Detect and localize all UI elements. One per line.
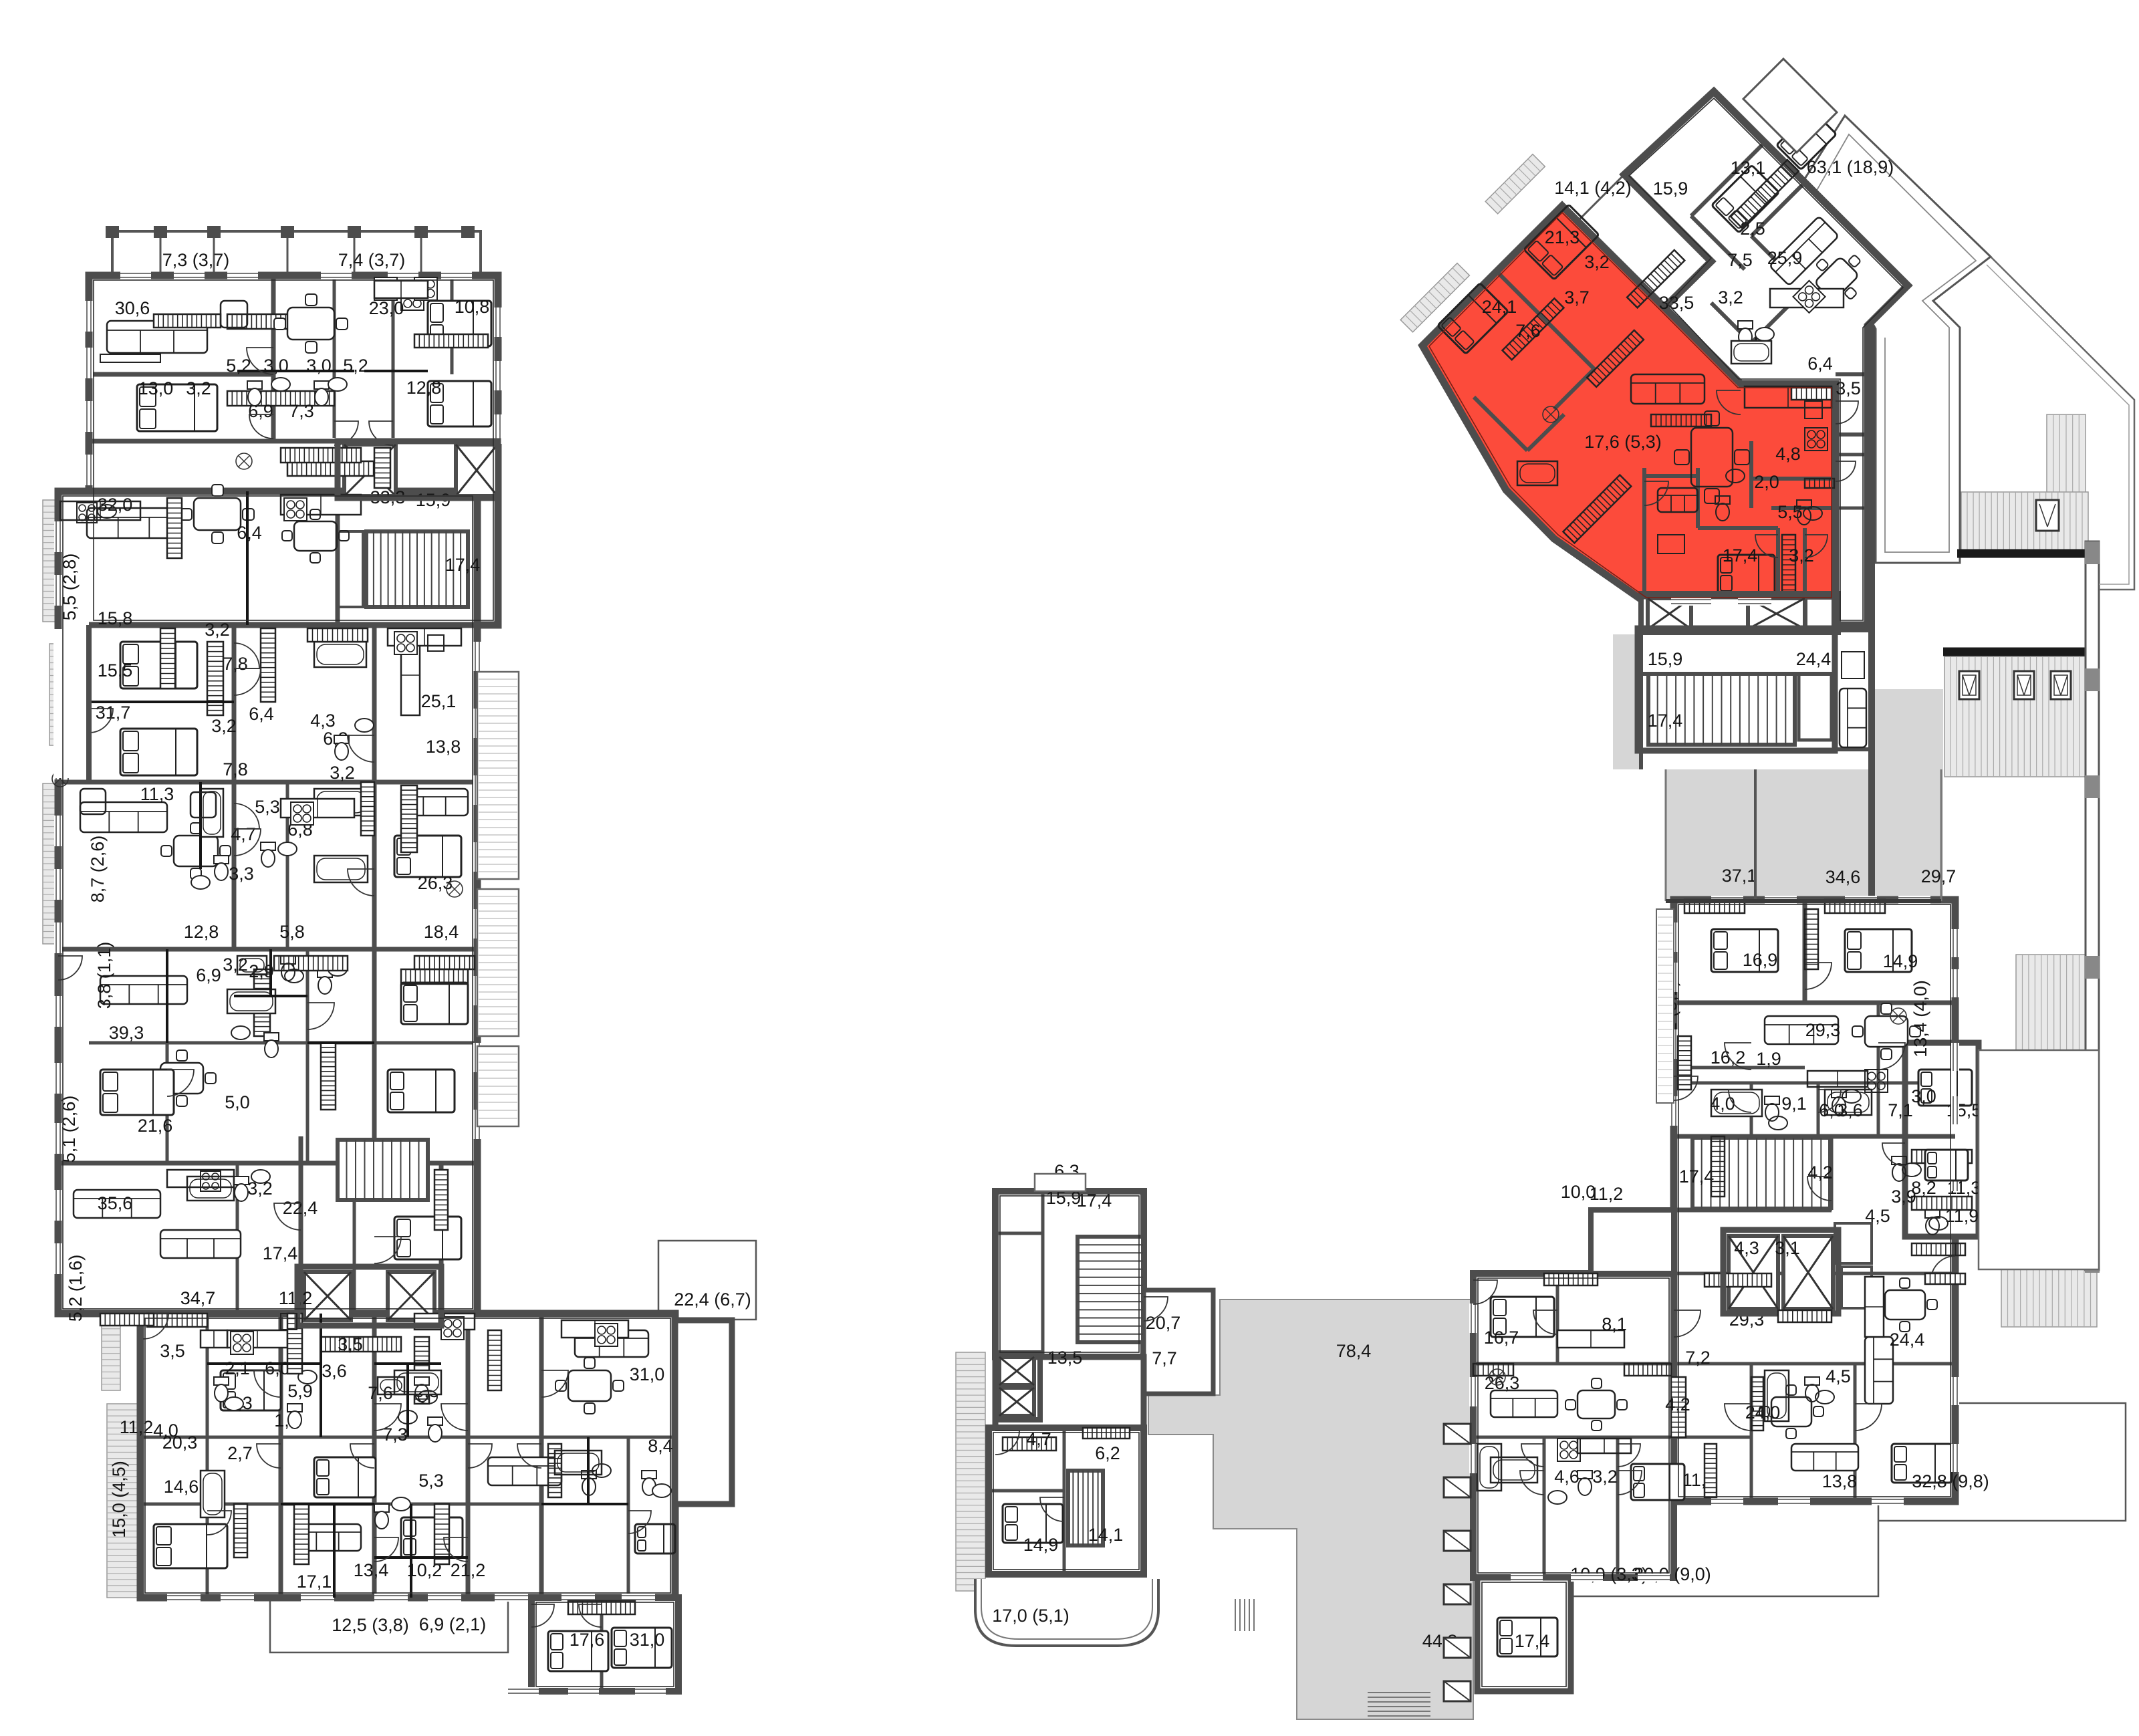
svg-text:4,3: 4,3 — [310, 711, 336, 731]
svg-text:13,4: 13,4 — [354, 1560, 389, 1580]
svg-text:3,7: 3,7 — [1564, 287, 1590, 307]
svg-text:7,8: 7,8 — [223, 759, 248, 779]
svg-text:7,6: 7,6 — [1515, 321, 1541, 341]
svg-text:4,0: 4,0 — [1710, 1094, 1735, 1114]
svg-text:22,4: 22,4 — [283, 1198, 318, 1218]
svg-text:29,7: 29,7 — [1921, 866, 1957, 886]
svg-text:13,5: 13,5 — [1047, 1348, 1083, 1368]
svg-text:20,7: 20,7 — [1146, 1313, 1181, 1333]
svg-text:7,4 (3,7): 7,4 (3,7) — [338, 250, 406, 270]
svg-text:34,7: 34,7 — [180, 1288, 216, 1308]
svg-text:17,4: 17,4 — [263, 1243, 298, 1263]
svg-text:17,1: 17,1 — [297, 1572, 332, 1592]
svg-text:4,5: 4,5 — [1865, 1206, 1890, 1226]
svg-text:3,6: 3,6 — [322, 1361, 347, 1381]
svg-text:78,4: 78,4 — [1336, 1341, 1372, 1361]
svg-text:17,4: 17,4 — [1723, 545, 1758, 566]
svg-text:7,3 (3,7): 7,3 (3,7) — [162, 250, 230, 270]
svg-text:17,4: 17,4 — [1648, 711, 1683, 731]
svg-text:3,5: 3,5 — [160, 1341, 185, 1361]
svg-text:1,9: 1,9 — [1756, 1049, 1781, 1069]
svg-text:21,2: 21,2 — [451, 1560, 486, 1580]
svg-text:5,8: 5,8 — [279, 922, 305, 942]
svg-text:5,3: 5,3 — [418, 1471, 444, 1491]
svg-text:3,8 (1,1): 3,8 (1,1) — [94, 942, 114, 1009]
svg-text:63,1 (18,9): 63,1 (18,9) — [1807, 157, 1894, 177]
svg-text:5,3: 5,3 — [255, 797, 280, 817]
svg-text:29,3: 29,3 — [1805, 1020, 1841, 1040]
svg-text:7,7: 7,7 — [1152, 1348, 1177, 1368]
svg-text:17,4: 17,4 — [1679, 1166, 1715, 1187]
svg-text:5,2 (1,6): 5,2 (1,6) — [66, 1255, 86, 1322]
svg-text:17,6: 17,6 — [570, 1630, 605, 1650]
svg-text:22,4 (6,7): 22,4 (6,7) — [674, 1289, 751, 1310]
svg-text:3,9: 3,9 — [1891, 1187, 1916, 1207]
svg-text:2,5: 2,5 — [1740, 219, 1765, 239]
svg-text:4,6: 4,6 — [1554, 1467, 1580, 1487]
svg-text:21,3: 21,3 — [1545, 227, 1580, 247]
svg-text:14,1 (4,2): 14,1 (4,2) — [1554, 178, 1632, 198]
svg-text:15,8: 15,8 — [98, 608, 133, 628]
svg-text:11,2: 11,2 — [1590, 1184, 1624, 1204]
svg-text:10,8: 10,8 — [455, 297, 490, 317]
svg-text:7,5: 7,5 — [1727, 250, 1753, 270]
svg-text:6,9: 6,9 — [196, 965, 221, 985]
svg-text:8,1: 8,1 — [1602, 1314, 1627, 1334]
svg-text:8,4: 8,4 — [648, 1436, 673, 1456]
svg-text:3,2: 3,2 — [205, 620, 230, 640]
svg-text:15,9: 15,9 — [1648, 649, 1683, 669]
svg-text:35,6: 35,6 — [98, 1193, 133, 1213]
svg-text:2,7: 2,7 — [227, 1443, 253, 1463]
svg-text:39,3: 39,3 — [109, 1023, 144, 1043]
svg-text:14,9: 14,9 — [1883, 951, 1918, 971]
svg-text:3,3: 3,3 — [229, 864, 254, 884]
svg-text:24,4: 24,4 — [1796, 649, 1832, 669]
svg-text:18,4: 18,4 — [424, 922, 459, 942]
svg-text:15,0 (4,5): 15,0 (4,5) — [109, 1461, 129, 1538]
svg-text:23,0: 23,0 — [369, 298, 404, 318]
svg-text:24,1: 24,1 — [1482, 297, 1517, 317]
svg-text:15,5: 15,5 — [98, 660, 133, 680]
svg-text:4,7: 4,7 — [231, 824, 256, 844]
svg-text:6,0: 6,0 — [265, 1358, 290, 1378]
svg-text:3,2: 3,2 — [330, 763, 355, 783]
svg-text:34,6: 34,6 — [1826, 867, 1861, 887]
svg-text:13,4 (4,0): 13,4 (4,0) — [1910, 980, 1930, 1058]
svg-text:15,9: 15,9 — [1653, 178, 1688, 199]
svg-text:8,7 (2,6): 8,7 (2,6) — [88, 836, 108, 903]
svg-text:4,2: 4,2 — [1807, 1162, 1833, 1183]
svg-text:12,5 (3,8): 12,5 (3,8) — [332, 1615, 409, 1635]
svg-text:12,8: 12,8 — [184, 922, 219, 942]
svg-text:7,1: 7,1 — [1888, 1100, 1913, 1120]
svg-text:14,6: 14,6 — [164, 1477, 199, 1497]
svg-text:3,2: 3,2 — [1789, 545, 1814, 566]
svg-text:13,8: 13,8 — [1822, 1471, 1858, 1491]
svg-text:6,9 (2,1): 6,9 (2,1) — [419, 1614, 487, 1634]
svg-text:5,2: 5,2 — [343, 356, 368, 376]
svg-text:3,2: 3,2 — [1584, 252, 1610, 272]
svg-text:31,0: 31,0 — [630, 1630, 665, 1650]
svg-text:16,7: 16,7 — [1484, 1328, 1519, 1348]
svg-text:6,4: 6,4 — [237, 523, 262, 543]
svg-text:5,0: 5,0 — [225, 1092, 250, 1112]
svg-text:4,5: 4,5 — [1826, 1366, 1851, 1386]
svg-text:30,6: 30,6 — [115, 298, 150, 318]
svg-text:11,2: 11,2 — [120, 1417, 154, 1437]
svg-text:14,1: 14,1 — [1088, 1525, 1124, 1545]
svg-text:13,0: 13,0 — [138, 378, 174, 398]
svg-text:17,0 (5,1): 17,0 (5,1) — [992, 1606, 1069, 1626]
svg-text:3,2: 3,2 — [186, 378, 211, 398]
svg-text:9,1: 9,1 — [1781, 1094, 1807, 1114]
svg-text:16,2: 16,2 — [1711, 1047, 1746, 1068]
svg-text:14,9: 14,9 — [1023, 1535, 1059, 1555]
svg-text:4,8: 4,8 — [1775, 444, 1801, 464]
svg-text:37,1: 37,1 — [1722, 866, 1757, 886]
svg-text:24,4: 24,4 — [1890, 1330, 1925, 1350]
svg-text:7,2: 7,2 — [1685, 1348, 1711, 1368]
svg-text:17,4: 17,4 — [1077, 1191, 1112, 1211]
svg-text:20,3: 20,3 — [162, 1433, 198, 1453]
svg-text:25,1: 25,1 — [421, 691, 457, 711]
svg-text:2,1: 2,1 — [225, 1358, 250, 1378]
svg-text:3,2: 3,2 — [1592, 1467, 1618, 1487]
svg-text:7,3: 7,3 — [289, 401, 314, 421]
svg-text:21,6: 21,6 — [138, 1116, 173, 1136]
svg-text:4,3: 4,3 — [1734, 1238, 1759, 1258]
svg-text:17,6 (5,3): 17,6 (5,3) — [1584, 432, 1662, 452]
svg-text:17,4: 17,4 — [1515, 1631, 1550, 1651]
svg-text:13,8: 13,8 — [426, 737, 461, 757]
svg-text:26,3: 26,3 — [418, 873, 453, 893]
svg-text:33,5: 33,5 — [1659, 293, 1694, 313]
svg-text:11,3: 11,3 — [140, 784, 174, 804]
svg-text:3,2: 3,2 — [211, 716, 237, 736]
svg-text:6,4: 6,4 — [1807, 354, 1833, 374]
svg-text:12,8: 12,8 — [406, 378, 442, 398]
svg-text:3,0: 3,0 — [306, 356, 332, 376]
svg-text:13,1: 13,1 — [1731, 158, 1766, 178]
svg-text:6,4: 6,4 — [249, 704, 274, 724]
svg-text:3,5: 3,5 — [1836, 378, 1861, 398]
svg-text:3,0: 3,0 — [263, 356, 289, 376]
svg-text:31,0: 31,0 — [630, 1364, 665, 1384]
svg-text:32,0: 32,0 — [98, 495, 133, 515]
svg-text:5,2: 5,2 — [226, 356, 251, 376]
svg-text:17,4: 17,4 — [445, 555, 481, 575]
svg-text:16,9: 16,9 — [1743, 950, 1778, 970]
svg-text:25,9: 25,9 — [1767, 248, 1803, 268]
svg-text:3,0: 3,0 — [1911, 1086, 1936, 1106]
svg-text:2,0: 2,0 — [1754, 472, 1779, 492]
svg-text:7,8: 7,8 — [223, 654, 248, 674]
svg-text:3,5: 3,5 — [338, 1334, 363, 1354]
svg-text:3,1: 3,1 — [1775, 1238, 1800, 1258]
svg-text:3,2: 3,2 — [1718, 287, 1743, 307]
svg-text:6,2: 6,2 — [1095, 1443, 1120, 1463]
